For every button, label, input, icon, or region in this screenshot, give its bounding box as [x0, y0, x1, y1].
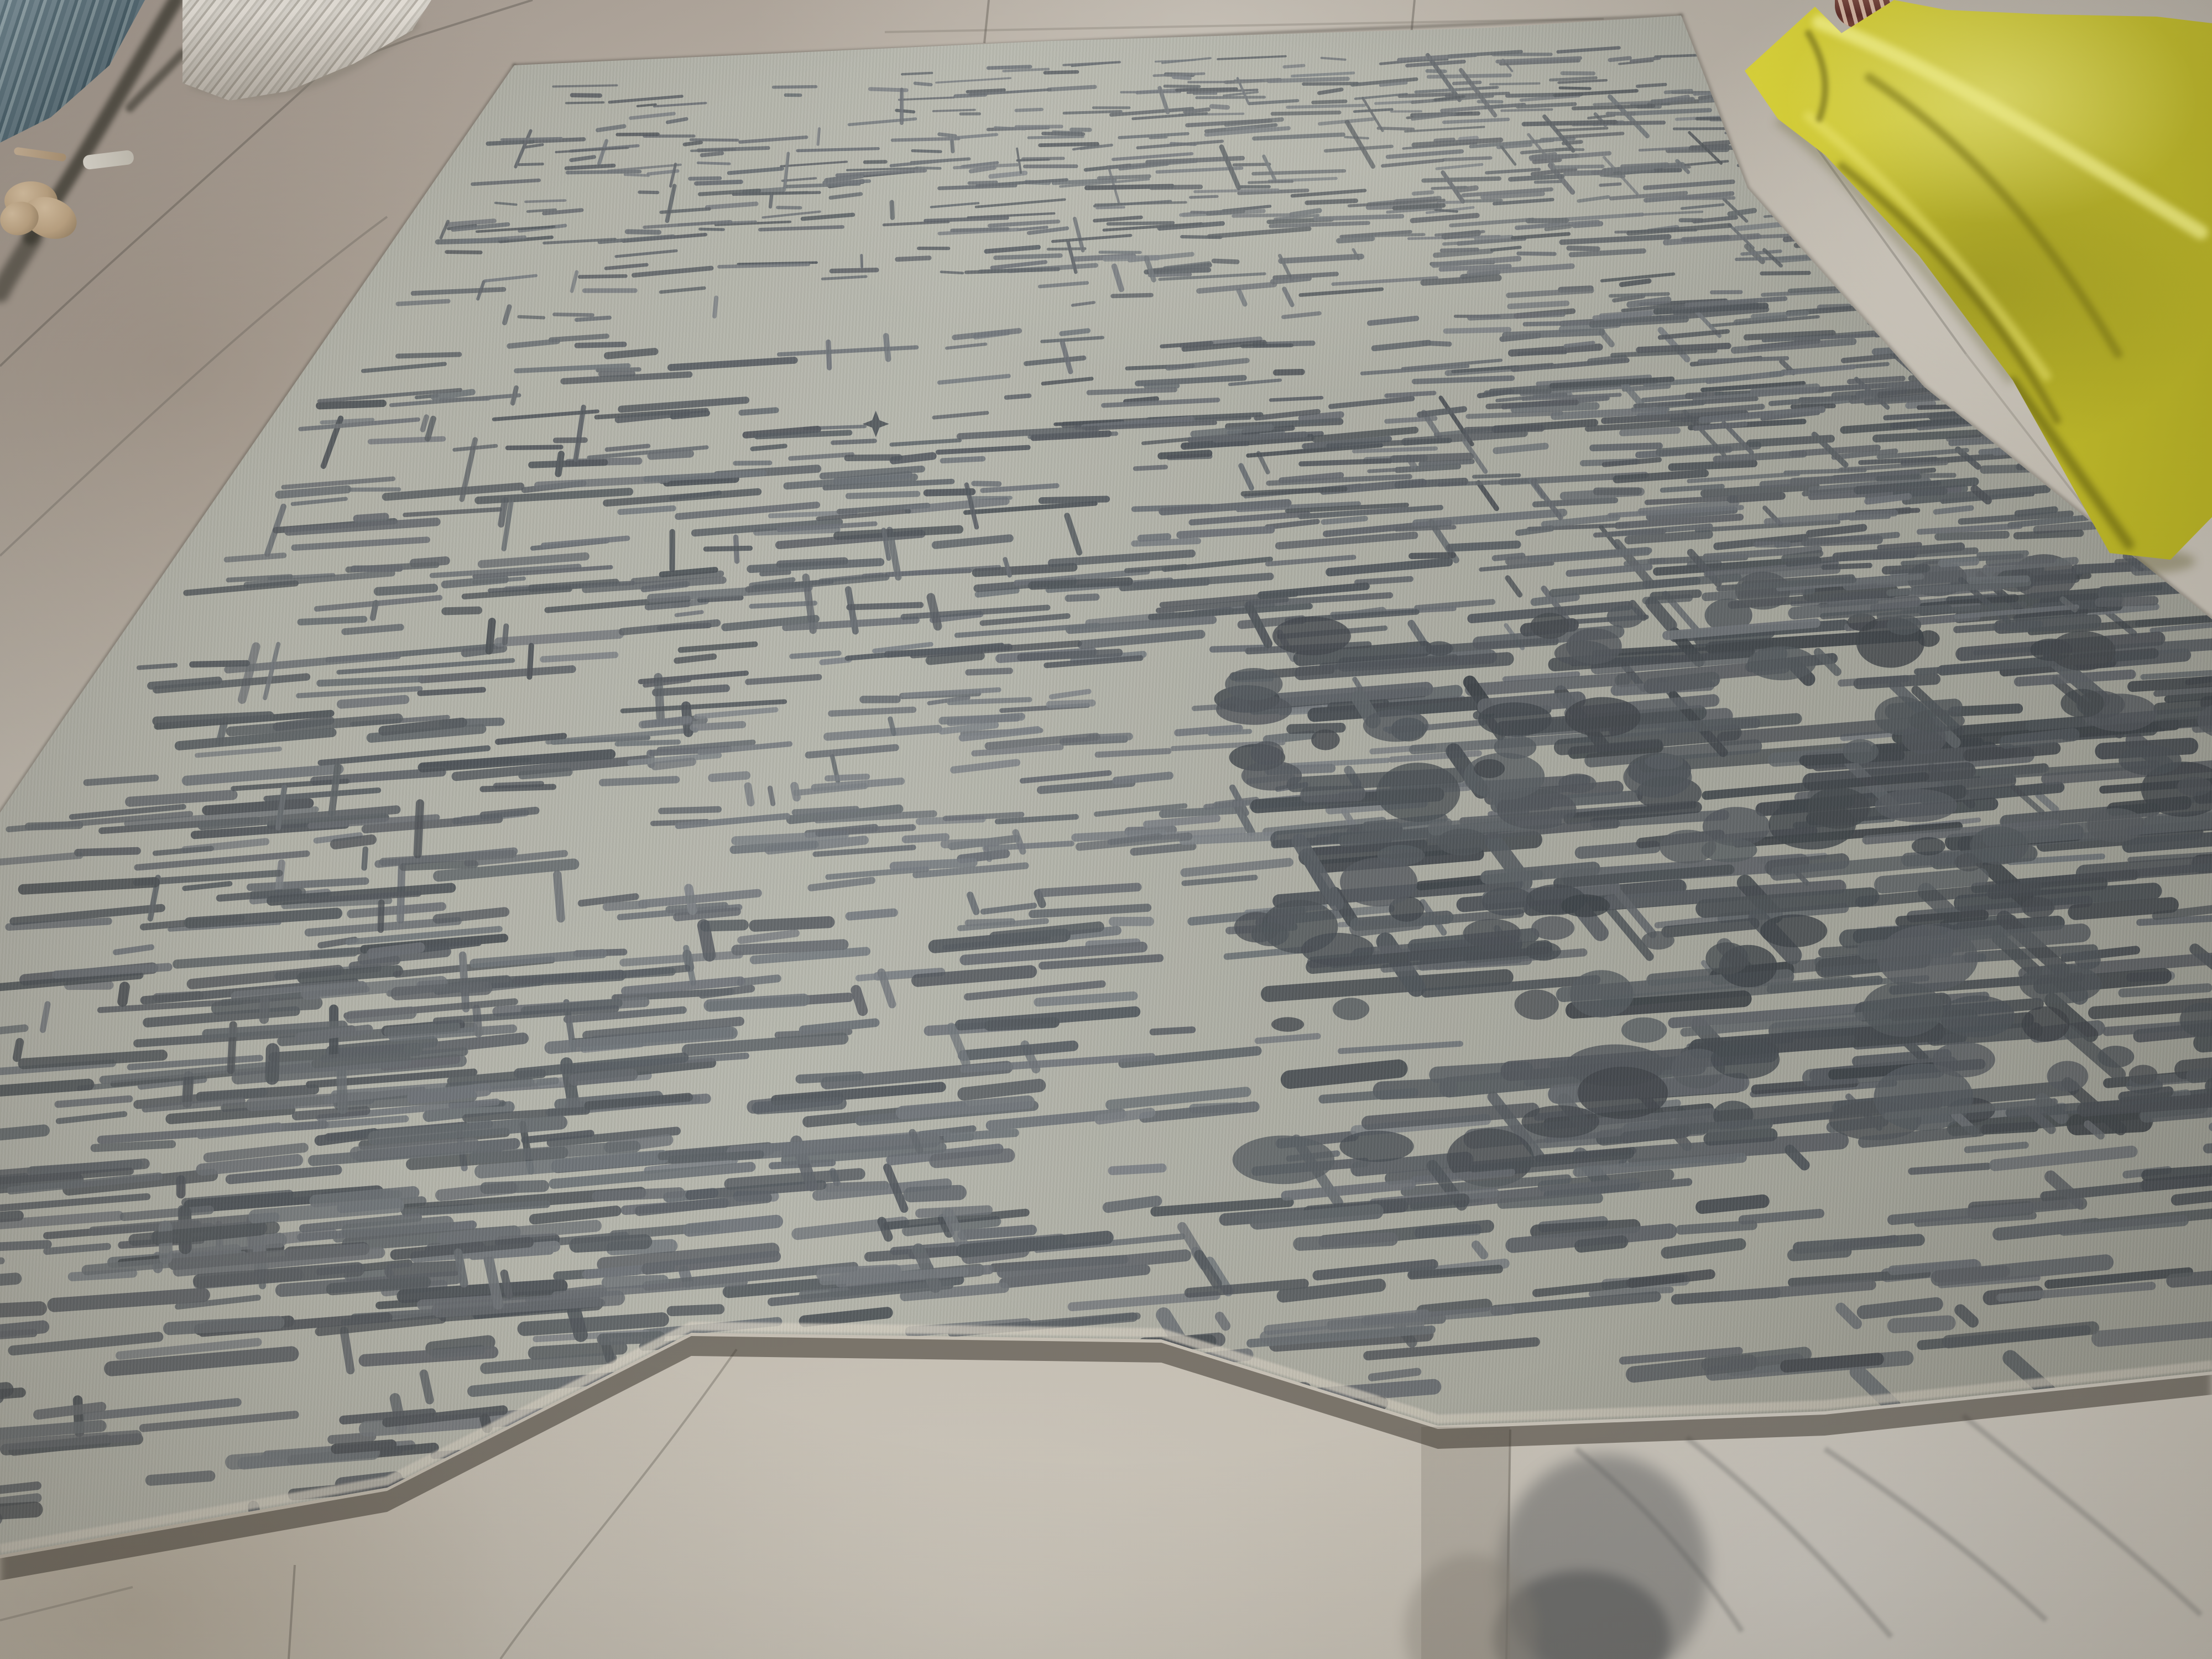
tarp-notch-shadow	[1808, 33, 1825, 119]
showroom-photo	[0, 0, 2212, 1659]
marble-dark-blotch	[1405, 1427, 1709, 1659]
yarn-bundle	[0, 171, 83, 246]
